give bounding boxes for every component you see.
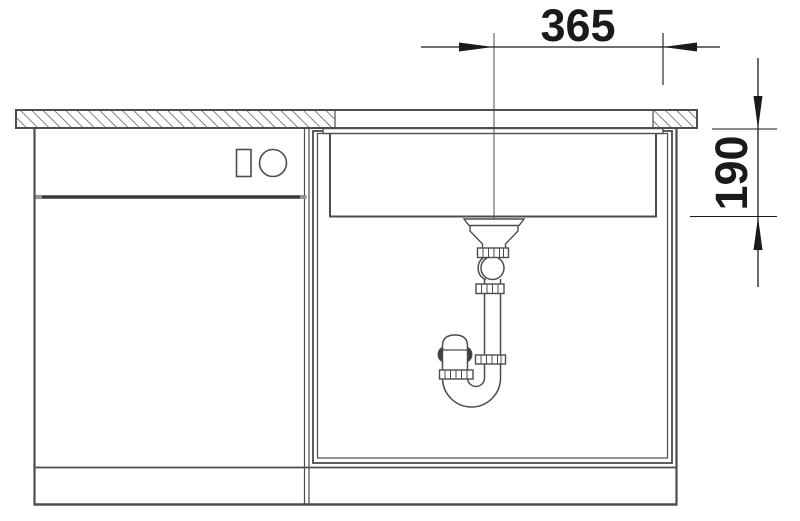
strainer-cup [470, 226, 518, 249]
sink-bowl [330, 132, 656, 217]
dim-365-arrow-left [459, 43, 493, 52]
drain-strainer [464, 219, 524, 248]
countertop-hatch-right [653, 110, 697, 128]
knurled-nut-strainer [478, 248, 509, 258]
countertop [16, 110, 697, 128]
dim-365-value: 365 [540, 0, 615, 51]
trap-ball-elbow [481, 257, 504, 280]
technical-drawing-page: 365 190 [0, 0, 800, 521]
knurled-nut-elbow [476, 284, 504, 294]
knurled-nut-inlet-pipe [476, 355, 506, 364]
dim-190-arrow-top [754, 96, 763, 129]
dim-365-arrow-right [663, 43, 697, 52]
dimension-190: 190 [690, 58, 777, 287]
sink-cabinet-drawing [16, 33, 697, 505]
countertop-hatch-left [16, 110, 335, 128]
dim-190-value: 190 [706, 135, 757, 210]
appliance-control-knob [260, 150, 287, 177]
siphon-p-trap [438, 248, 509, 407]
strainer-flange [464, 219, 524, 226]
cleanout-wing-right [468, 348, 473, 362]
appliance-control-rect [237, 150, 252, 177]
knurled-nut-cleanout-arm [440, 370, 474, 379]
sink-flange [323, 129, 663, 134]
undermount-sink [323, 129, 663, 217]
drawing-canvas: 365 190 [0, 0, 800, 521]
cleanout-dome-cap [443, 335, 468, 350]
appliance-front [36, 150, 307, 198]
dim-190-arrow-bottom [754, 217, 763, 250]
cleanout-wing-left [438, 348, 443, 362]
dimension-365: 365 [421, 0, 720, 85]
